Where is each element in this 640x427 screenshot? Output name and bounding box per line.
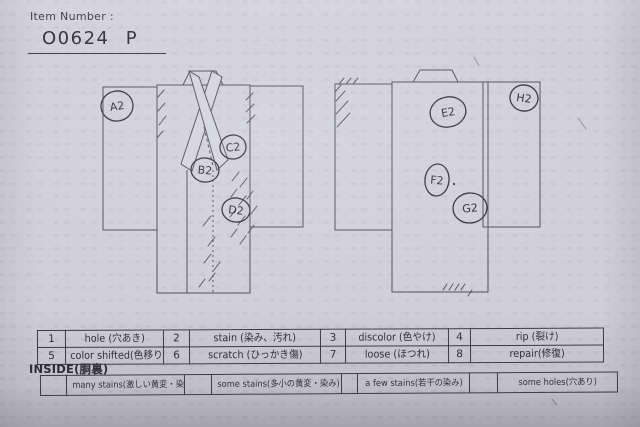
condition-code-label: discolor (色やけ) xyxy=(345,329,448,346)
inside-option-text: many stains(激しい黄変・染み) xyxy=(72,376,184,395)
back-hem-marks xyxy=(443,284,472,296)
condition-code-number: 1 xyxy=(37,330,65,347)
inside-option-text: some stains(多小の黄変・染み) xyxy=(217,375,339,394)
front-left-edge-stain-marks xyxy=(157,90,166,138)
condition-code-number: 3 xyxy=(320,329,345,346)
condition-code-number: 4 xyxy=(448,329,470,346)
front-center-stain-marks xyxy=(199,216,220,287)
marker-labels: A2 B2 C2 D2 E2 F2 G2 H2 xyxy=(109,91,532,218)
condition-code-label: scratch (ひっかき傷) xyxy=(189,346,320,364)
inside-check-cell xyxy=(184,374,211,394)
condition-code-row: 5 color shifted(色移り) 6 scratch (ひっかき傷) 7… xyxy=(37,345,603,364)
marker-label-h2: H2 xyxy=(515,91,532,106)
back-neckband xyxy=(413,70,458,82)
condition-code-label-text: rip (裂け) xyxy=(516,329,559,344)
inside-lining-table: many stains(激しい黄変・染み) some stains(多小の黄変・… xyxy=(40,371,618,396)
condition-code-label-text: hole (穴あき) xyxy=(84,331,144,346)
marker-label-f2: F2 xyxy=(430,173,444,187)
item-number-label: Item Number : xyxy=(30,10,114,23)
condition-code-label-text: stain (染み、汚れ) xyxy=(214,330,297,345)
condition-code-label-text: repair(修復) xyxy=(509,346,564,361)
pen-dot xyxy=(453,183,455,185)
condition-code-label-text: discolor (色やけ) xyxy=(358,330,435,345)
marker-label-b2: B2 xyxy=(197,163,213,177)
condition-code-label-text: loose (ほつれ) xyxy=(364,347,429,362)
condition-code-label-text: scratch (ひっかき傷) xyxy=(208,347,302,362)
condition-code-number: 6 xyxy=(163,347,189,364)
inside-lining-row: many stains(激しい黄変・染み) some stains(多小の黄変・… xyxy=(40,372,617,396)
inside-option-label: a few stains(若干の染み) xyxy=(357,373,469,394)
condition-code-label: stain (染み、汚れ) xyxy=(189,329,320,347)
marker-label-c2: C2 xyxy=(225,140,241,154)
inside-option-label: some stains(多小の黄変・染み) xyxy=(211,374,341,395)
inside-check-cell xyxy=(469,373,497,393)
inside-check-cell xyxy=(341,374,357,394)
condition-code-label: repair(修復) xyxy=(470,345,603,363)
condition-code-label: rip (裂け) xyxy=(470,328,603,346)
inside-option-label: some holes(穴あり) xyxy=(497,372,617,393)
condition-code-label: loose (ほつれ) xyxy=(345,346,448,363)
condition-code-number: 8 xyxy=(448,346,470,363)
front-right-sleeve xyxy=(250,86,303,227)
condition-code-table: 1 hole (穴あき) 2 stain (染み、汚れ) 3 discolor … xyxy=(37,328,604,365)
inside-option-text: some holes(穴あり) xyxy=(518,373,597,391)
inside-check-cell xyxy=(40,375,66,395)
inside-option-text: a few stains(若干の染み) xyxy=(365,374,463,393)
item-number-value: O0624 P xyxy=(42,28,138,49)
marker-label-a2: A2 xyxy=(109,99,125,114)
condition-code-number: 7 xyxy=(320,346,345,363)
item-number-underline xyxy=(28,53,166,54)
back-left-sleeve-stain-marks xyxy=(335,78,358,127)
condition-code-number: 2 xyxy=(163,330,189,347)
marker-label-d2: D2 xyxy=(227,203,244,218)
marker-label-g2: G2 xyxy=(462,201,479,215)
condition-code-label: hole (穴あき) xyxy=(65,330,163,347)
marker-label-e2: E2 xyxy=(440,105,456,120)
inside-option-label: many stains(激しい黄変・染み) xyxy=(66,375,184,396)
